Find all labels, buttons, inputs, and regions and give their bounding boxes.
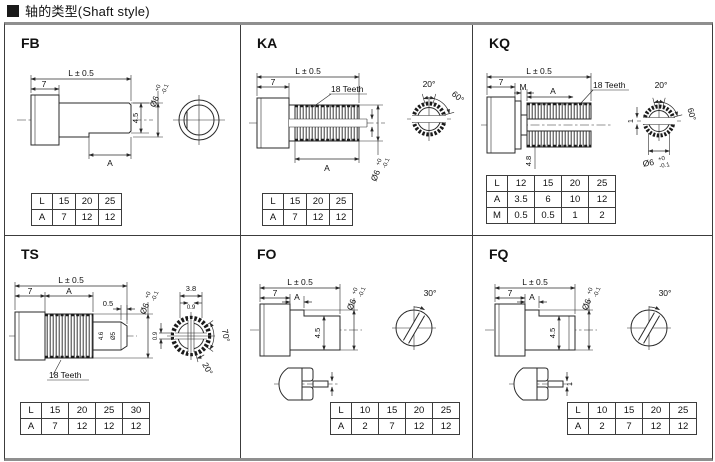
dim-label: 4.5: [313, 328, 322, 338]
table-cell: 6: [535, 192, 562, 208]
svg-text:+0: +0: [658, 156, 666, 163]
dim-label: A: [550, 86, 556, 96]
table-cell: 7: [616, 419, 643, 435]
table-cell: A: [32, 210, 53, 226]
panel-label: FQ: [489, 246, 508, 262]
dim-label: A: [107, 158, 113, 168]
table-cell: 12: [99, 210, 122, 226]
dim-label: 7: [271, 77, 276, 87]
dim-label: 4.8: [524, 156, 533, 166]
table-cell: 7: [42, 419, 69, 435]
angle-label: 20°: [655, 80, 668, 90]
dim-label: 4.6: [99, 331, 105, 340]
table-cell: L: [568, 403, 589, 419]
table-row: A271212: [331, 419, 460, 435]
dim-label: 1: [626, 119, 635, 123]
svg-text:Ø6: Ø6: [138, 301, 152, 316]
table-cell: L: [331, 403, 352, 419]
dim-table-ts: L15202530A7121212: [20, 402, 150, 435]
diameter-dim: Ø6 +0 -0.1: [345, 283, 368, 313]
dim-table-ka: L152025A71212: [262, 193, 353, 226]
dim-label: 0.5: [103, 299, 113, 308]
table-cell: 25: [99, 194, 122, 210]
table-cell: 20: [307, 194, 330, 210]
drawing-ts: 4.6 Ø5 L ± 0.5 7 A 0.5: [7, 272, 241, 404]
dim-table-fq: L10152025A271212: [567, 402, 697, 435]
angle-label: 60°: [685, 107, 698, 122]
table-cell: 12: [670, 419, 697, 435]
table-cell: L: [21, 403, 42, 419]
svg-text:-0.1: -0.1: [161, 83, 171, 95]
dim-table-kq: L12152025A3.561012M0.50.512: [486, 175, 616, 224]
table-cell: 20: [643, 403, 670, 419]
table-row: L10152025: [568, 403, 697, 419]
table-cell: 12: [643, 419, 670, 435]
shaft-style-sheet: 轴的类型(Shaft style) FB L ± 0.5 7 4.5: [0, 0, 715, 462]
table-cell: 7: [284, 210, 307, 226]
drawing-fq: L ± 0.5 7 A 4.5 Ø6 +0 -0.1: [481, 272, 707, 412]
table-cell: 25: [433, 403, 460, 419]
table-cell: 12: [330, 210, 353, 226]
table-cell: 15: [616, 403, 643, 419]
teeth-label: 18 Teeth: [331, 84, 364, 94]
diameter-dim: Ø6 +0 -0.1: [138, 287, 161, 317]
angle-label: 30°: [659, 288, 672, 298]
dim-label: 0.9: [153, 331, 159, 340]
panel-label: TS: [21, 246, 39, 262]
panel-fo: FO L ± 0.5 7 A 4.5: [241, 236, 473, 458]
dim-table-fb: L152025A71212: [31, 193, 122, 226]
table-row: L15202530: [21, 403, 150, 419]
section-title: 轴的类型(Shaft style): [7, 2, 150, 19]
diameter-dim: Ø6 +0 -0.1: [580, 283, 603, 313]
table-cell: 15: [53, 194, 76, 210]
table-cell: 1: [562, 208, 589, 224]
table-cell: L: [263, 194, 284, 210]
dim-label: 7: [273, 288, 278, 298]
angle-label: 30°: [424, 288, 437, 298]
table-cell: 12: [589, 192, 616, 208]
svg-text:Ø6: Ø6: [148, 94, 162, 109]
table-cell: 0.5: [535, 208, 562, 224]
table-cell: 12: [76, 210, 99, 226]
dim-label: 7: [499, 77, 504, 87]
dim-label: M: [519, 82, 526, 92]
table-cell: 12: [307, 210, 330, 226]
dim-label: A: [324, 163, 330, 173]
diameter-dim: Ø6 +0 -0.1: [369, 154, 392, 184]
table-cell: L: [487, 176, 508, 192]
table-cell: M: [487, 208, 508, 224]
dim-label: 4.5: [548, 328, 557, 338]
panel-ka: KA L ± 0.5 7: [241, 25, 473, 236]
table-cell: A: [263, 210, 284, 226]
table-row: L152025: [263, 194, 353, 210]
table-cell: 7: [379, 419, 406, 435]
dim-label: 4.5: [131, 113, 140, 123]
table-cell: 3.5: [508, 192, 535, 208]
table-cell: 0.5: [508, 208, 535, 224]
table-cell: L: [32, 194, 53, 210]
table-cell: 15: [535, 176, 562, 192]
panel-fb: FB L ± 0.5 7 4.5 A: [5, 25, 241, 236]
dim-label: L ± 0.5: [522, 277, 548, 287]
table-cell: 25: [589, 176, 616, 192]
table-cell: A: [331, 419, 352, 435]
panel-label: FO: [257, 246, 276, 262]
table-cell: 25: [330, 194, 353, 210]
table-cell: 12: [69, 419, 96, 435]
table-cell: 15: [284, 194, 307, 210]
svg-text:-0.1: -0.1: [593, 286, 603, 298]
diameter-dim: Ø6 +0 -0.1: [642, 154, 671, 172]
svg-text:-0.1: -0.1: [659, 162, 671, 170]
svg-text:Ø6: Ø6: [580, 297, 594, 312]
table-cell: 12: [123, 419, 150, 435]
dim-label: A: [529, 292, 535, 302]
table-cell: 2: [589, 208, 616, 224]
svg-text:-0.1: -0.1: [358, 286, 368, 298]
table-cell: A: [568, 419, 589, 435]
table-cell: 10: [589, 403, 616, 419]
svg-text:Ø6: Ø6: [345, 297, 359, 312]
table-row: L12152025: [487, 176, 616, 192]
drawing-fb: L ± 0.5 7 4.5 A Ø6 +0 -0.1: [13, 63, 235, 188]
dim-label: 7: [508, 288, 513, 298]
table-cell: 20: [76, 194, 99, 210]
table-cell: 12: [508, 176, 535, 192]
table-cell: 2: [352, 419, 379, 435]
table-cell: 20: [406, 403, 433, 419]
drawing-ka: L ± 0.5 7 18 Teeth A Ø6 +0 -0.1: [245, 61, 471, 191]
table-cell: 20: [562, 176, 589, 192]
table-cell: 20: [69, 403, 96, 419]
table-cell: 10: [352, 403, 379, 419]
table-row: A71212: [263, 210, 353, 226]
table-cell: 30: [123, 403, 150, 419]
table-row: A71212: [32, 210, 122, 226]
table-row: M0.50.512: [487, 208, 616, 224]
table-cell: 25: [670, 403, 697, 419]
table-cell: 12: [406, 419, 433, 435]
table-row: A7121212: [21, 419, 150, 435]
angle-label: 60°: [450, 89, 466, 105]
table-cell: 10: [562, 192, 589, 208]
table-cell: 12: [96, 419, 123, 435]
panel-fq: FQ L ± 0.5 7 A 4.5: [473, 236, 712, 458]
dim-label: L ± 0.5: [58, 275, 84, 285]
table-cell: 7: [53, 210, 76, 226]
svg-text:-0.1: -0.1: [382, 157, 392, 169]
dim-label: 3.8: [186, 284, 196, 293]
table-cell: 2: [589, 419, 616, 435]
panel-label: KA: [257, 35, 277, 51]
dim-label: 0.9: [187, 305, 196, 311]
dim-label: 7: [42, 79, 47, 89]
table-row: L10152025: [331, 403, 460, 419]
table-cell: 12: [433, 419, 460, 435]
drawing-fo: L ± 0.5 7 A 4.5 Ø6 +0 -0.1: [246, 272, 472, 412]
svg-text:Ø6: Ø6: [642, 157, 655, 169]
angle-label: 20°: [200, 361, 215, 377]
angle-label: 70°: [220, 328, 232, 342]
table-row: A3.561012: [487, 192, 616, 208]
panel-label: FB: [21, 35, 40, 51]
shaft-grid: FB L ± 0.5 7 4.5 A: [4, 22, 713, 461]
drawing-kq: L ± 0.5 7 M A 18 Teeth 4.8: [477, 61, 709, 173]
dim-label: L ± 0.5: [295, 66, 321, 76]
dim-label: L ± 0.5: [68, 68, 94, 78]
dim-label: Ø5: [111, 331, 117, 340]
dim-label: A: [294, 292, 300, 302]
teeth-label: 18 Teeth: [593, 80, 626, 90]
section-title-text: 轴的类型(Shaft style): [25, 1, 150, 20]
angle-label: 20°: [423, 79, 436, 89]
table-row: A271212: [568, 419, 697, 435]
dim-label: L ± 0.5: [526, 66, 552, 76]
svg-text:Ø6: Ø6: [369, 168, 383, 183]
teeth-label: 18 Teeth: [49, 370, 82, 380]
panel-ts: TS 4.6 Ø5 L ± 0.5 7: [5, 236, 241, 458]
dim-label: 1: [565, 382, 574, 386]
table-cell: 15: [42, 403, 69, 419]
dim-label: A: [66, 286, 72, 296]
dim-label: 7: [28, 286, 33, 296]
section-marker-icon: [7, 5, 19, 17]
table-row: L152025: [32, 194, 122, 210]
panel-kq: KQ L ± 0.5 7: [473, 25, 712, 236]
svg-text:-0.1: -0.1: [151, 290, 161, 302]
table-cell: A: [487, 192, 508, 208]
table-cell: 25: [96, 403, 123, 419]
panel-label: KQ: [489, 35, 510, 51]
diameter-dim: Ø6 +0 -0.1: [148, 80, 171, 110]
table-cell: 15: [379, 403, 406, 419]
dim-label: L ± 0.5: [287, 277, 313, 287]
dim-table-fo: L10152025A271212: [330, 402, 460, 435]
table-cell: A: [21, 419, 42, 435]
